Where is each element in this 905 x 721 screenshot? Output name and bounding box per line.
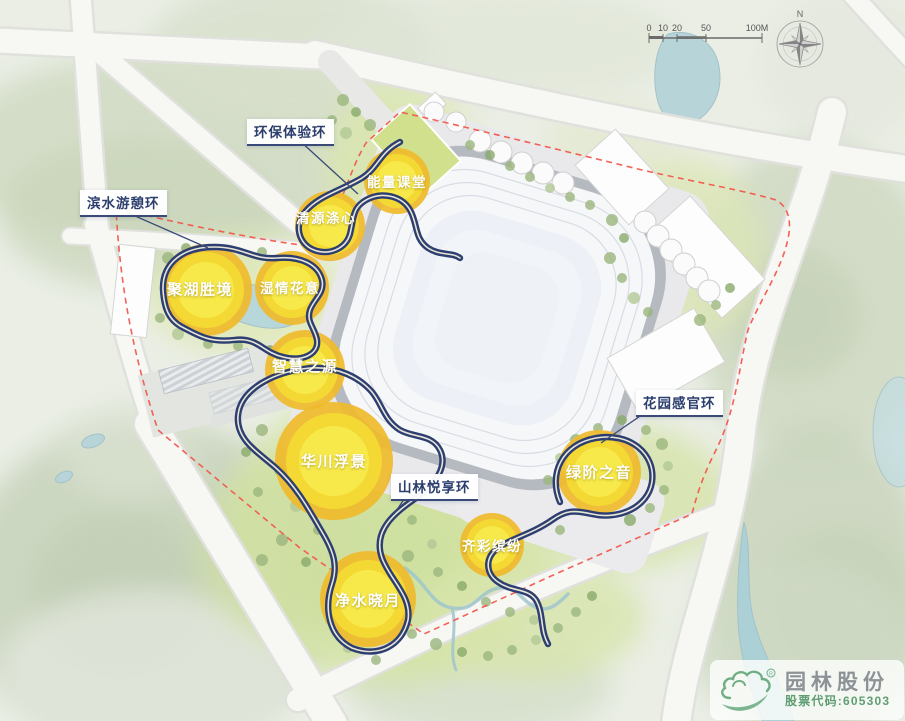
node-label-energy: 能量课堂 <box>367 171 427 191</box>
svg-text:100M: 100M <box>746 23 769 33</box>
east-pond <box>873 377 905 487</box>
node-label-juhu: 聚湖胜境 <box>167 279 233 300</box>
masterplan-canvas: 0 10 20 50 100M N 环保体验环 滨水游憩环 山林悦享环 花园感官… <box>0 0 905 721</box>
node-label-qingyuan: 清源涤心 <box>296 207 356 227</box>
ring-label-garden: 花园感官环 <box>636 390 723 417</box>
registered-mark: R <box>769 672 773 678</box>
ring-label-mountain: 山林悦享环 <box>391 474 478 501</box>
svg-text:20: 20 <box>672 23 682 33</box>
north-lake <box>655 32 720 124</box>
node-label-jingshui: 净水晓月 <box>335 590 401 611</box>
compass-icon: N <box>777 9 823 67</box>
node-label-zhihui: 智慧之源 <box>272 356 338 377</box>
compass-north-label: N <box>797 9 804 19</box>
node-label-qicai: 齐彩缤纷 <box>462 535 522 555</box>
node-label-huachuan: 华川浮景 <box>301 451 367 472</box>
svg-text:50: 50 <box>701 23 711 33</box>
svg-text:0: 0 <box>646 23 651 33</box>
svg-text:10: 10 <box>658 23 668 33</box>
logo-cloud-icon: R <box>716 664 778 716</box>
ring-label-eco: 环保体验环 <box>247 119 334 146</box>
logo-company-name: 园林股份 <box>785 671 890 695</box>
ring-label-waterfront: 滨水游憩环 <box>80 190 167 217</box>
node-label-shiqing: 湿情花意 <box>260 277 320 297</box>
node-label-lvjie: 绿阶之音 <box>566 462 632 483</box>
logo-stock-code: 股票代码:605303 <box>785 695 890 709</box>
company-logo: R 园林股份 股票代码:605303 <box>710 660 904 720</box>
